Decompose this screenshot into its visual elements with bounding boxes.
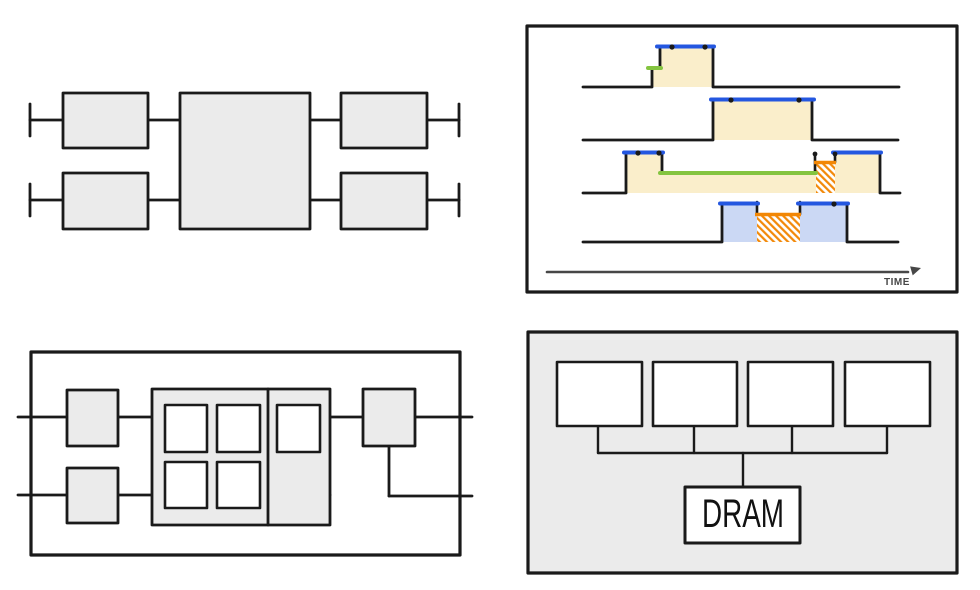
- pipeline-box-top-left: [63, 93, 148, 148]
- trace4-contention-hatch: [757, 214, 800, 242]
- event-dot: [813, 152, 818, 157]
- dram-label: DRAM: [702, 492, 784, 536]
- event-dot: [656, 150, 661, 155]
- soc-block-diagram: [18, 352, 472, 555]
- pipeline-box-bottom-right: [341, 173, 427, 229]
- soc-box-left-bottom: [67, 468, 118, 523]
- diagram-canvas: TIME DRAM: [0, 0, 980, 590]
- diagram-svg: TIME DRAM: [0, 0, 980, 590]
- pipeline-diagram: [30, 93, 459, 229]
- bank-box-1: [557, 362, 642, 426]
- soc-box-right: [363, 389, 415, 446]
- event-dot: [833, 152, 838, 157]
- dram-tree-diagram: DRAM: [528, 332, 957, 573]
- cluster-side-box: [277, 405, 320, 452]
- event-dot: [669, 44, 674, 49]
- bank-box-3: [748, 362, 833, 426]
- event-dot: [796, 97, 801, 102]
- trace3-contention-hatch: [816, 162, 835, 193]
- cluster-core-box-2: [217, 405, 260, 452]
- event-dot: [702, 44, 707, 49]
- pipeline-box-bottom-left: [63, 173, 148, 229]
- timeline-diagram: TIME: [527, 26, 957, 292]
- trace4-pulse-fill-right: [800, 204, 847, 242]
- event-dot: [635, 150, 640, 155]
- trace2-pulse-fill: [713, 100, 812, 140]
- event-dot: [831, 201, 836, 206]
- bank-box-4: [845, 362, 930, 426]
- soc-box-left-top: [67, 390, 118, 446]
- event-dot: [728, 97, 733, 102]
- cluster-core-box-1: [165, 405, 207, 452]
- pipeline-center-box: [180, 93, 310, 229]
- bank-box-2: [653, 362, 737, 426]
- cluster-core-box-3: [165, 462, 207, 508]
- time-axis-label: TIME: [884, 277, 910, 288]
- pipeline-box-top-right: [341, 93, 427, 148]
- timeline-frame: [527, 26, 957, 292]
- trace3-pulse-fill-right: [835, 153, 880, 193]
- trace4-pulse-fill-left: [722, 204, 757, 242]
- cluster-core-box-4: [217, 462, 260, 508]
